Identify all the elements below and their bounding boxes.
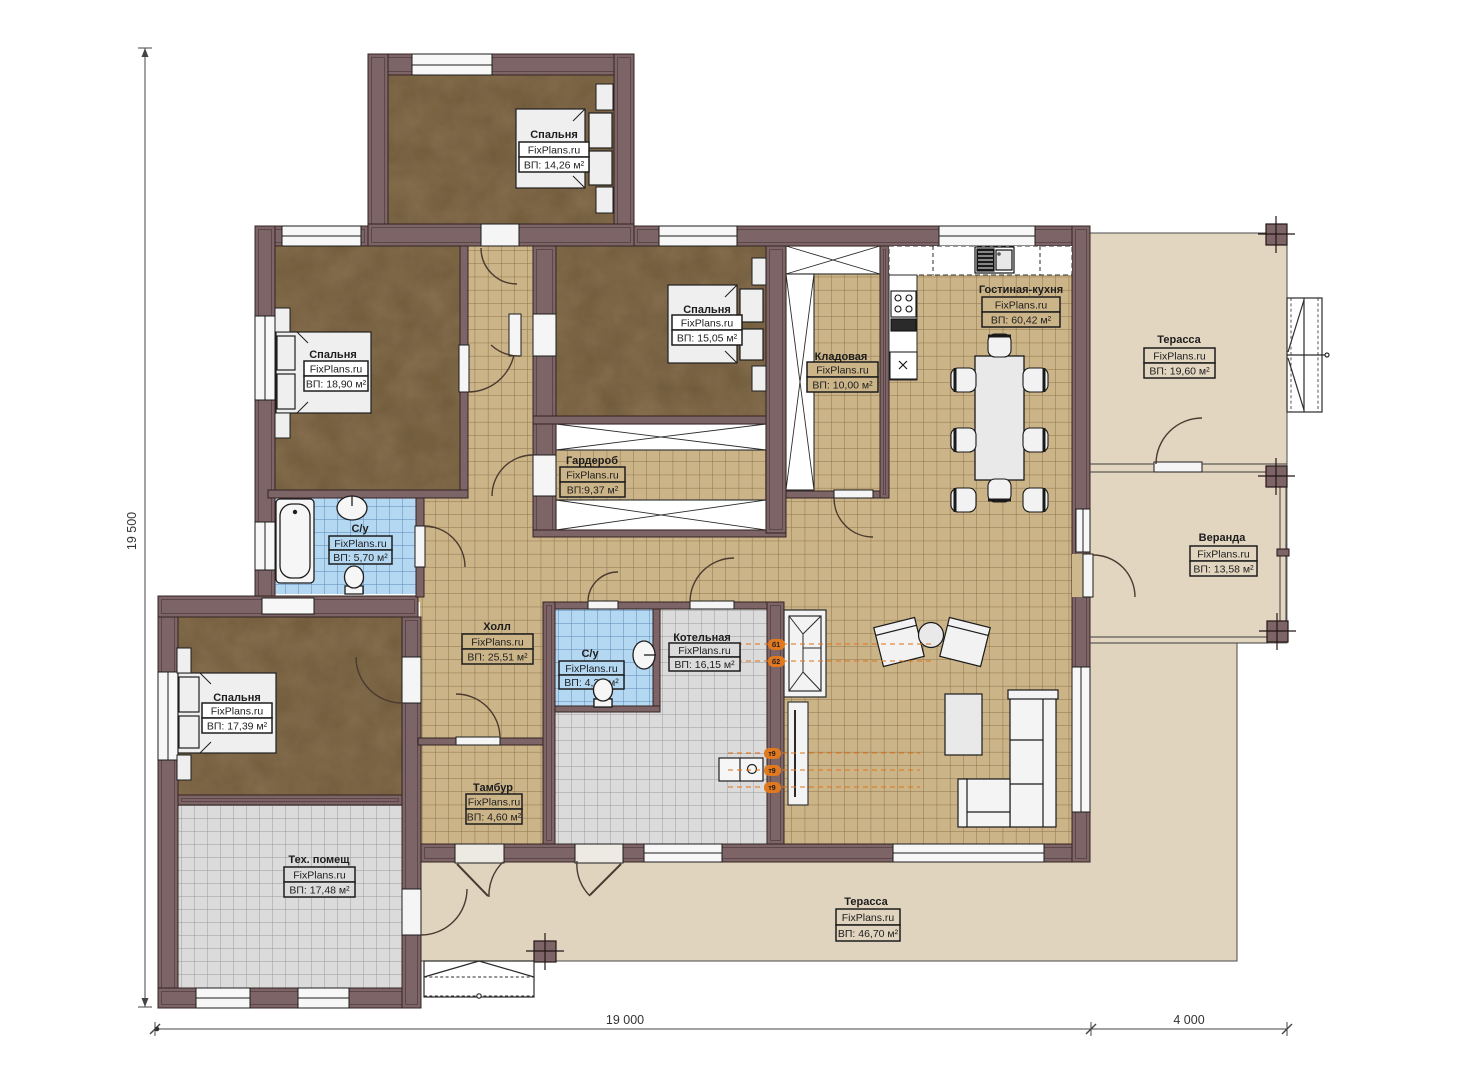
svg-text:Терасса: Терасса	[1157, 334, 1201, 346]
svg-text:ВП: 13,58 м²: ВП: 13,58 м²	[1193, 564, 1254, 576]
svg-text:б1: б1	[772, 641, 780, 649]
svg-text:т9: т9	[768, 751, 775, 758]
svg-text:Веранда: Веранда	[1199, 532, 1247, 544]
svg-text:б2: б2	[772, 658, 780, 666]
svg-text:Холл: Холл	[483, 621, 511, 633]
svg-text:Спальня: Спальня	[213, 692, 261, 704]
svg-text:4 000: 4 000	[1173, 1013, 1204, 1027]
svg-text:FixPlans.ru: FixPlans.ru	[293, 870, 346, 882]
svg-text:т9: т9	[768, 785, 775, 792]
svg-text:Спальня: Спальня	[309, 349, 357, 361]
svg-text:Гостиная-кухня: Гостиная-кухня	[979, 284, 1063, 296]
svg-text:ВП: 16,15 м²: ВП: 16,15 м²	[674, 659, 735, 671]
svg-text:С/у: С/у	[351, 523, 369, 535]
svg-text:FixPlans.ru: FixPlans.ru	[842, 912, 895, 924]
svg-text:Тамбур: Тамбур	[473, 782, 513, 794]
svg-text:ВП: 5,70 м²: ВП: 5,70 м²	[333, 552, 388, 564]
svg-text:Спальня: Спальня	[530, 129, 578, 141]
svg-text:FixPlans.ru: FixPlans.ru	[678, 645, 731, 657]
svg-text:FixPlans.ru: FixPlans.ru	[565, 663, 618, 675]
svg-text:ВП: 14,26 м²: ВП: 14,26 м²	[524, 160, 585, 172]
svg-text:ВП: 15,05 м²: ВП: 15,05 м²	[677, 333, 738, 345]
svg-text:FixPlans.ru: FixPlans.ru	[468, 797, 521, 809]
svg-text:ВП: 19,60 м²: ВП: 19,60 м²	[1149, 366, 1210, 378]
svg-text:ВП: 4,60 м²: ВП: 4,60 м²	[467, 812, 522, 824]
svg-text:ВП:9,37 м²: ВП:9,37 м²	[567, 485, 619, 497]
svg-text:ВП: 17,48 м²: ВП: 17,48 м²	[289, 885, 350, 897]
svg-text:FixPlans.ru: FixPlans.ru	[995, 300, 1048, 312]
svg-text:19 500: 19 500	[125, 512, 139, 550]
svg-text:FixPlans.ru: FixPlans.ru	[211, 706, 264, 718]
svg-text:FixPlans.ru: FixPlans.ru	[528, 145, 581, 157]
svg-text:Спальня: Спальня	[683, 304, 731, 316]
svg-text:FixPlans.ru: FixPlans.ru	[334, 538, 387, 550]
svg-text:FixPlans.ru: FixPlans.ru	[681, 318, 734, 330]
svg-text:FixPlans.ru: FixPlans.ru	[566, 470, 619, 482]
svg-text:Гардероб: Гардероб	[566, 455, 618, 467]
svg-text:FixPlans.ru: FixPlans.ru	[816, 365, 869, 377]
svg-text:19 000: 19 000	[606, 1013, 644, 1027]
svg-text:ВП: 10,00 м²: ВП: 10,00 м²	[812, 380, 873, 392]
svg-text:ВП: 46,70 м²: ВП: 46,70 м²	[838, 928, 899, 940]
svg-text:ВП: 60,42 м²: ВП: 60,42 м²	[991, 315, 1052, 327]
svg-text:ВП: 18,90 м²: ВП: 18,90 м²	[306, 379, 367, 391]
svg-text:ВП: 25,51 м²: ВП: 25,51 м²	[467, 652, 528, 664]
svg-text:FixPlans.ru: FixPlans.ru	[471, 637, 524, 649]
svg-text:FixPlans.ru: FixPlans.ru	[1197, 549, 1250, 561]
svg-text:т9: т9	[768, 768, 775, 775]
svg-text:ВП: 17,39 м²: ВП: 17,39 м²	[207, 721, 268, 733]
svg-text:FixPlans.ru: FixPlans.ru	[1153, 351, 1206, 363]
svg-text:Тех. помещ: Тех. помещ	[288, 854, 350, 866]
svg-text:Кладовая: Кладовая	[815, 351, 868, 363]
svg-text:С/у: С/у	[581, 648, 599, 660]
svg-text:Котельная: Котельная	[673, 632, 731, 644]
svg-text:Терасса: Терасса	[844, 896, 888, 908]
svg-text:FixPlans.ru: FixPlans.ru	[310, 364, 363, 376]
